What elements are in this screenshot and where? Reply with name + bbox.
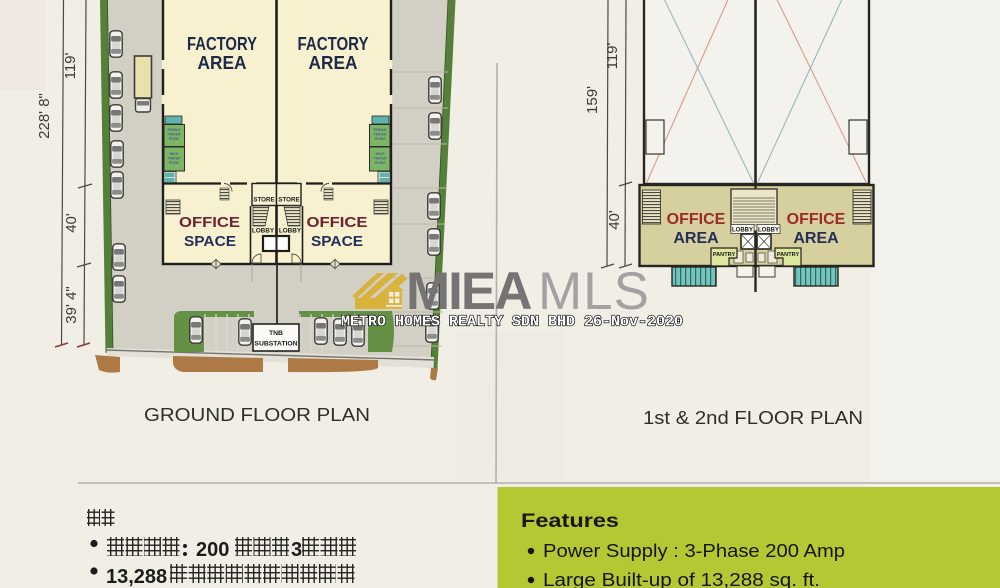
svg-text:TNB: TNB [269, 330, 283, 337]
svg-text:LOBBY: LOBBY [252, 228, 275, 235]
svg-text:OFFICE: OFFICE [179, 215, 240, 231]
svg-text:SPACE: SPACE [311, 234, 363, 250]
svg-text:39' 4": 39' 4" [63, 286, 80, 323]
svg-text:Large Built-up of 13,288 sq. f: Large Built-up of 13,288 sq. ft. [543, 570, 820, 588]
svg-text:PRAYER: PRAYER [168, 157, 182, 161]
svg-text:MLS: MLS [538, 262, 650, 321]
svg-text:228' 8": 228' 8" [36, 93, 53, 139]
svg-text:ROOM: ROOM [169, 161, 179, 165]
svg-text:AREA: AREA [198, 52, 247, 73]
svg-text:40': 40' [63, 213, 80, 233]
svg-text:Power Supply : 3-Phase 200 Amp: Power Supply : 3-Phase 200 Amp [543, 541, 845, 561]
svg-text:1st & 2nd FLOOR PLAN: 1st & 2nd FLOOR PLAN [643, 407, 863, 428]
svg-text:AREA: AREA [309, 52, 358, 73]
svg-text:40': 40' [606, 210, 623, 230]
svg-text:3: 3 [291, 539, 302, 561]
svg-text:13,288: 13,288 [106, 566, 167, 588]
svg-text:METRO HOMES REALTY SDN BHD 26-: METRO HOMES REALTY SDN BHD 26-Nov-2020 [341, 315, 683, 331]
svg-text:STORE: STORE [253, 197, 274, 204]
svg-text:ROOM: ROOM [169, 137, 179, 141]
svg-text:MALE: MALE [170, 152, 179, 156]
svg-text:ROOM: ROOM [375, 137, 385, 141]
svg-text:119': 119' [604, 42, 621, 69]
svg-text:FACTORY: FACTORY [298, 33, 370, 54]
svg-text:OFFICE: OFFICE [787, 211, 846, 228]
svg-text:FEMALE: FEMALE [374, 128, 387, 132]
svg-text:LOBBY: LOBBY [279, 228, 302, 235]
svg-text:PRAYER: PRAYER [168, 133, 182, 137]
svg-text:AREA: AREA [673, 230, 719, 247]
svg-text:FEMALE: FEMALE [168, 128, 181, 132]
svg-text:SUBSTATION: SUBSTATION [254, 341, 297, 348]
svg-text:PRAYER: PRAYER [374, 133, 388, 137]
svg-text:OFFICE: OFFICE [667, 211, 726, 228]
svg-text:SPACE: SPACE [184, 234, 236, 250]
svg-text:119': 119' [62, 52, 79, 79]
svg-text:PANTRY: PANTRY [713, 252, 736, 258]
svg-text:AREA: AREA [793, 230, 839, 247]
svg-text:GROUND FLOOR PLAN: GROUND FLOOR PLAN [144, 404, 370, 425]
svg-text:OFFICE: OFFICE [307, 215, 368, 231]
svg-text:PANTRY: PANTRY [777, 252, 800, 258]
svg-text:Features: Features [521, 511, 619, 532]
svg-text:159': 159' [584, 86, 601, 114]
svg-text:MIEA: MIEA [406, 262, 531, 321]
svg-text:PRAYER: PRAYER [374, 157, 388, 161]
svg-text:ROOM: ROOM [375, 161, 385, 165]
svg-text:MALE: MALE [376, 152, 385, 156]
svg-text:200: 200 [196, 539, 229, 561]
svg-text:FACTORY: FACTORY [187, 33, 258, 54]
svg-text:LOBBY: LOBBY [732, 228, 753, 234]
svg-text:STORE: STORE [278, 197, 299, 204]
svg-text:LOBBY: LOBBY [758, 228, 779, 234]
